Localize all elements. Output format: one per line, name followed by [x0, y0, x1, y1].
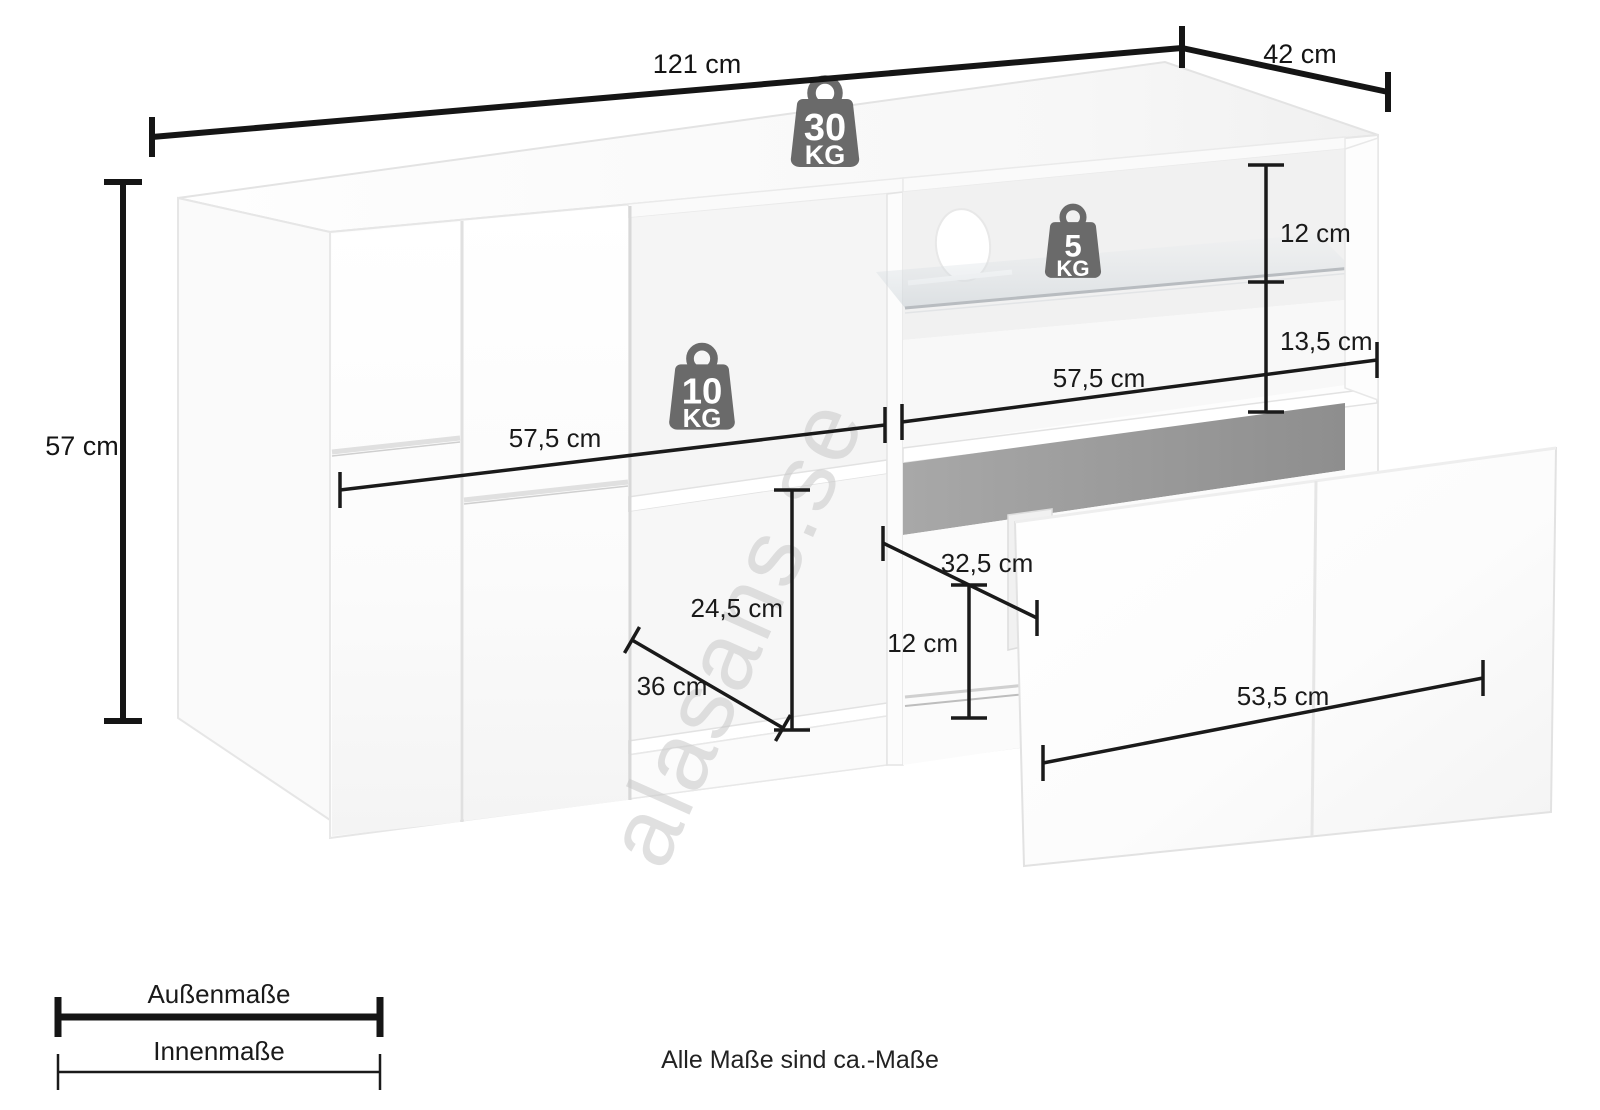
label-height-57: 57 cm	[45, 431, 119, 461]
badge-top-unit: KG	[805, 140, 846, 170]
legend-inner-label: Innenmaße	[153, 1036, 285, 1066]
label-right-width: 57,5 cm	[1053, 363, 1146, 393]
label-width-121: 121 cm	[653, 49, 742, 79]
label-left-depth: 36 cm	[637, 671, 708, 701]
door-panel-right	[464, 206, 628, 821]
badge-middle-unit: KG	[683, 405, 722, 433]
label-below-glass: 13,5 cm	[1280, 326, 1373, 356]
legend-outer-label: Außenmaße	[147, 979, 290, 1009]
label-left-height: 24,5 cm	[691, 593, 784, 623]
furniture-dimension-diagram: alasans.se 30 KG 10 KG 5 KG 121 cm 42 cm…	[0, 0, 1600, 1110]
door-panel-left	[332, 222, 460, 836]
label-drawer-front-width: 53,5 cm	[1237, 681, 1330, 711]
load-badge-top-panel: 30 KG	[791, 80, 859, 171]
footnote-text: Alle Maße sind ca.-Maße	[661, 1046, 939, 1074]
label-above-glass: 12 cm	[1280, 218, 1351, 248]
label-depth-42: 42 cm	[1263, 39, 1337, 69]
legend: Außenmaße Innenmaße	[58, 979, 380, 1090]
cabinet-left-side-panel	[178, 198, 330, 820]
label-drawer-height: 12 cm	[887, 628, 958, 658]
label-left-width: 57,5 cm	[509, 423, 602, 453]
left-doors	[330, 206, 628, 838]
label-drawer-depth: 32,5 cm	[941, 548, 1034, 578]
diagram-canvas: alasans.se 30 KG 10 KG 5 KG 121 cm 42 cm…	[0, 0, 1600, 1110]
badge-glass-unit: KG	[1056, 256, 1089, 281]
drawer-front	[1008, 448, 1556, 866]
